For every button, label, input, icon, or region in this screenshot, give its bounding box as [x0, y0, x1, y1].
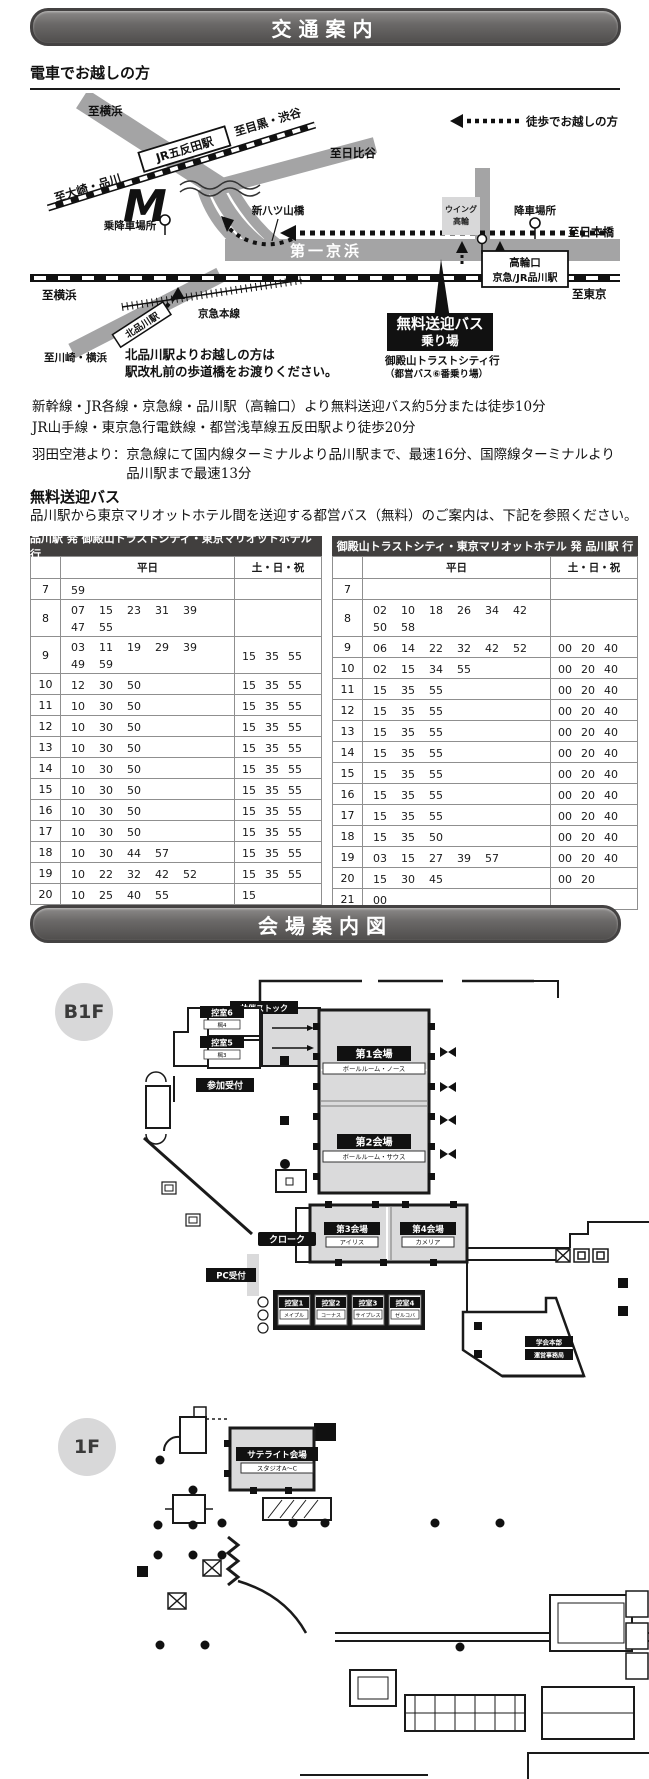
departure-minute: 30 — [99, 720, 127, 735]
departure-minute: 55 — [429, 809, 457, 824]
timetable-cell: 153555 — [363, 784, 551, 805]
departure-minute: 35 — [401, 704, 429, 719]
departure-minute: 10 — [71, 825, 99, 840]
svg-text:控室5: 控室5 — [211, 1037, 233, 1047]
departure-minute: 55 — [288, 867, 311, 882]
timetable-outbound-table: 平日土・日・祝759807152331394755903111929394959… — [30, 556, 322, 905]
b1f-halls-3-4: 第3会場 アイリス 第4会場 カメリア — [310, 1201, 467, 1266]
departure-minute: 15 — [242, 762, 265, 777]
departure-minute: 55 — [99, 620, 127, 635]
departure-minute: 15 — [242, 867, 265, 882]
timetable-row: 759 — [31, 579, 322, 600]
floor-badge-b1f: B1F — [55, 983, 113, 1041]
departure-minute: 10 — [71, 699, 99, 714]
b1f-service-room — [276, 1170, 306, 1192]
departure-minute: 55 — [429, 788, 457, 803]
departure-minute: 34 — [485, 603, 513, 618]
timetable-cell: 19 — [31, 863, 61, 884]
timetable-cell: 9 — [31, 637, 61, 674]
svg-text:京急/JR品川駅: 京急/JR品川駅 — [492, 271, 558, 284]
departure-minute: 23 — [127, 603, 155, 618]
departure-minute: 55 — [288, 762, 311, 777]
svg-text:ボールルーム・ノース: ボールルーム・ノース — [343, 1065, 405, 1073]
timetable-cell: 10254055 — [61, 884, 235, 905]
timetable-cell: 061422324252 — [363, 637, 551, 658]
departure-minute: 15 — [373, 830, 401, 845]
timetable-cell: 153555 — [235, 800, 322, 821]
departure-minute: 40 — [604, 851, 627, 866]
departure-minute: 10 — [401, 603, 429, 618]
departure-minute: 55 — [288, 741, 311, 756]
haneda-text: 京急線にて国内線ターミナルより品川駅まで、最速16分、国際線ターミナルより品川駅… — [126, 446, 617, 484]
timetable-row: 1810304457153555 — [31, 842, 322, 863]
walk-legend: 徒歩でお越しの方 — [450, 114, 618, 129]
timetable-row: 80210182634425058 — [333, 600, 638, 637]
departure-minute: 35 — [265, 678, 288, 693]
departure-minute: 15 — [373, 872, 401, 887]
timetable-cell: 153555 — [363, 721, 551, 742]
kita-note-line1: 北品川駅よりお越しの方は — [125, 347, 275, 362]
bus-timetable: 平日土・日・祝759807152331394755903111929394959… — [30, 556, 322, 905]
to-tokyo-label: 至東京 — [572, 287, 607, 301]
departure-minute: 15 — [242, 720, 265, 735]
svg-text:高輪: 高輪 — [453, 216, 470, 226]
departure-minute: 00 — [558, 809, 581, 824]
departure-minute: 55 — [429, 683, 457, 698]
b1f-waiting-room-2: 控室2 コーナス — [315, 1295, 347, 1325]
departure-minute: 20 — [581, 662, 604, 677]
departure-minute: 55 — [288, 649, 311, 664]
bus-section-heading: 無料送迎バス — [30, 486, 120, 507]
departure-minute: 15 — [373, 788, 401, 803]
departure-minute: 10 — [71, 741, 99, 756]
departure-minute: 40 — [604, 662, 627, 677]
timetable-cell: 153555 — [235, 637, 322, 674]
departure-minute: 39 — [183, 603, 211, 618]
access-map: 徒歩でお越しの方 JR五反田駅 北品川駅 高輪口 京急/JR品川駅 ウイング 高… — [30, 93, 620, 393]
timetable-cell: 12 — [31, 716, 61, 737]
heading-rule — [30, 88, 620, 90]
departure-minute: 55 — [429, 767, 457, 782]
departure-minute: 20 — [581, 830, 604, 845]
timetable-cell — [551, 600, 638, 637]
departure-minute: 15 — [242, 846, 265, 861]
svg-text:第1会場: 第1会場 — [356, 1048, 393, 1061]
timetable-cell — [235, 600, 322, 637]
svg-text:コーナス: コーナス — [321, 1313, 341, 1319]
svg-text:クローク: クローク — [269, 1235, 305, 1246]
timetable-outbound-title: 品川駅 発 御殿山トラストシティ・東京マリオットホテル 行 — [30, 536, 322, 556]
timetable-row: 16153555002040 — [333, 784, 638, 805]
timetable-row: 201025405515 — [31, 884, 322, 905]
departure-minute: 40 — [604, 704, 627, 719]
timetable-cell: 59 — [61, 579, 235, 600]
departure-minute: 03 — [71, 640, 99, 655]
departure-minute: 55 — [288, 678, 311, 693]
svg-text:楓4: 楓4 — [218, 1021, 228, 1029]
departure-minute: 40 — [604, 809, 627, 824]
departure-minute: 00 — [558, 725, 581, 740]
to-yokohama-left-label: 至横浜 — [42, 288, 77, 302]
timetable-cell: 153555 — [235, 695, 322, 716]
departure-minute: 50 — [127, 825, 155, 840]
departure-minute: 49 — [71, 657, 99, 672]
departure-minute: 00 — [558, 767, 581, 782]
bus-description: 品川駅から東京マリオットホテル間を送迎する都営バス（無料）のご案内は、下記を参照… — [30, 507, 638, 526]
section-banner-venue: 会場案内図 — [30, 905, 621, 943]
departure-minute: 00 — [558, 746, 581, 761]
timetable-cell: 153555 — [235, 863, 322, 884]
departure-minute: 20 — [581, 683, 604, 698]
b1f-ballroom: 第1会場 ボールルーム・ノース 第2会場 ボールルーム・サウス — [313, 1010, 456, 1193]
timetable-row: 10123050153555 — [31, 674, 322, 695]
departure-minute: 40 — [604, 767, 627, 782]
timetable-cell: 103050 — [61, 695, 235, 716]
svg-text:スタジオA〜C: スタジオA〜C — [257, 1464, 298, 1473]
departure-minute: 15 — [401, 851, 429, 866]
f1-satellite-hall: サテライト会場 スタジオA〜C — [224, 1423, 336, 1494]
timetable-cell: 15 — [333, 763, 363, 784]
departure-minute: 35 — [265, 867, 288, 882]
boarding-point-label: 乗降車場所 — [103, 219, 157, 232]
b1f-waiting-rooms-1-4: 控室1 メイプル 控室2 コーナス 控室3 サイプレス 控 — [273, 1290, 425, 1330]
departure-minute: 30 — [401, 872, 429, 887]
timetable-inbound-table: 平日土・日・祝780210182634425058906142232425200… — [332, 556, 638, 910]
timetable-row: 13153555002040 — [333, 721, 638, 742]
departure-minute: 42 — [513, 603, 541, 618]
timetable-cell: 8 — [333, 600, 363, 637]
departure-minute: 27 — [429, 851, 457, 866]
departure-minute: 15 — [373, 746, 401, 761]
departure-minute: 55 — [429, 746, 457, 761]
svg-text:ウイング: ウイング — [445, 204, 477, 214]
svg-text:第4会場: 第4会場 — [412, 1224, 444, 1235]
timetable-cell: 18 — [31, 842, 61, 863]
departure-minute: 50 — [373, 620, 401, 635]
timetable-row: 17103050153555 — [31, 821, 322, 842]
door-bowtie-icons — [440, 1047, 456, 1159]
departure-minute: 15 — [242, 699, 265, 714]
departure-minute: 40 — [604, 641, 627, 656]
departure-minute: 35 — [265, 804, 288, 819]
departure-minute: 42 — [155, 867, 183, 882]
departure-minute: 11 — [99, 640, 127, 655]
departure-minute: 39 — [183, 640, 211, 655]
departure-minute: 50 — [127, 783, 155, 798]
departure-minute: 15 — [373, 767, 401, 782]
departure-minute: 30 — [99, 762, 127, 777]
departure-minute: 35 — [401, 683, 429, 698]
b1f-columns — [280, 1056, 290, 1169]
timetable-row: 1002153455002040 — [333, 658, 638, 679]
train-section-heading: 電車でお越しの方 — [30, 62, 150, 83]
departure-minute: 15 — [373, 704, 401, 719]
f1-black-column — [137, 1566, 148, 1577]
departure-minute: 15 — [373, 683, 401, 698]
departure-minute: 50 — [127, 804, 155, 819]
svg-text:高輪口: 高輪口 — [509, 256, 541, 269]
departure-minute: 50 — [127, 678, 155, 693]
timetable-cell: 002040 — [551, 826, 638, 847]
timetable-cell: 0315273957 — [363, 847, 551, 868]
departure-minute: 55 — [288, 846, 311, 861]
timetable-cell: 153555 — [235, 779, 322, 800]
departure-minute: 00 — [558, 662, 581, 677]
timetable-row: 15103050153555 — [31, 779, 322, 800]
b1f-registration-label: 参加受付 — [196, 1078, 254, 1092]
timetable-cell: 153555 — [235, 674, 322, 695]
timetable-cell: 153555 — [235, 821, 322, 842]
departure-minute: 40 — [604, 683, 627, 698]
to-hibiya-label: 至日比谷 — [330, 146, 376, 160]
section-banner-transportation: 交通案内 — [30, 8, 621, 46]
b1f-waiting-room-3: 控室3 サイプレス — [352, 1295, 384, 1325]
departure-minute: 50 — [127, 741, 155, 756]
departure-minute: 59 — [99, 657, 127, 672]
b1f-waiting-room-4: 控室4 ゼルコバ — [389, 1295, 421, 1325]
timetable-cell: 7 — [31, 579, 61, 600]
timetable-header-cell: 土・日・祝 — [551, 557, 638, 579]
timetable-cell: 17 — [31, 821, 61, 842]
timetable-row: 14103050153555 — [31, 758, 322, 779]
departure-minute: 55 — [429, 725, 457, 740]
timetable-cell: 103050 — [61, 779, 235, 800]
timetable-cell: 11 — [31, 695, 61, 716]
departure-minute: 20 — [581, 788, 604, 803]
departure-minute: 42 — [485, 641, 513, 656]
departure-minute: 55 — [288, 825, 311, 840]
departure-minute: 40 — [604, 788, 627, 803]
timetable-outbound: 品川駅 発 御殿山トラストシティ・東京マリオットホテル 行 平日土・日・祝759… — [30, 536, 322, 905]
svg-text:アイリス: アイリス — [340, 1240, 364, 1247]
timetable-cell: 0020 — [551, 868, 638, 889]
departure-minute: 15 — [373, 809, 401, 824]
departure-minute: 52 — [183, 867, 211, 882]
departure-minute: 30 — [99, 699, 127, 714]
svg-text:控室3: 控室3 — [359, 1299, 378, 1308]
walk-legend-label: 徒歩でお越しの方 — [525, 115, 618, 129]
timetable-row: 190315273957002040 — [333, 847, 638, 868]
timetable-cell: 153555 — [363, 805, 551, 826]
departure-minute: 30 — [99, 804, 127, 819]
departure-minute: 18 — [429, 603, 457, 618]
svg-text:乗り場: 乗り場 — [420, 333, 459, 348]
timetable-cell: 1022324252 — [61, 863, 235, 884]
bus-destination-label: 御殿山トラストシティ行 — [384, 354, 500, 367]
departure-minute: 10 — [71, 804, 99, 819]
timetable-cell: 9 — [333, 637, 363, 658]
departure-minute: 47 — [71, 620, 99, 635]
departure-minute: 15 — [242, 741, 265, 756]
b1f-hq-room: 学会本部 運営事務局 — [474, 1322, 573, 1360]
svg-text:控室4: 控室4 — [396, 1299, 415, 1308]
timetable-cell: 11 — [333, 679, 363, 700]
alight-point-label: 降車場所 — [514, 204, 556, 217]
departure-minute: 10 — [71, 762, 99, 777]
svg-text:学会本部: 学会本部 — [536, 1337, 563, 1346]
timetable-row: 807152331394755 — [31, 600, 322, 637]
departure-minute: 30 — [99, 846, 127, 861]
departure-minute: 50 — [127, 762, 155, 777]
timetable-row: 11153555002040 — [333, 679, 638, 700]
haneda-note: 羽田空港より： 京急線にて国内線ターミナルより品川駅まで、最速16分、国際線ター… — [32, 446, 617, 484]
departure-minute: 55 — [429, 704, 457, 719]
timetable-inbound: 御殿山トラストシティ・東京マリオットホテル 発 品川駅 行 平日土・日・祝780… — [332, 536, 638, 910]
timetable-cell: 153550 — [363, 826, 551, 847]
departure-minute: 10 — [71, 888, 99, 903]
departure-minute: 15 — [99, 603, 127, 618]
departure-minute: 55 — [457, 662, 485, 677]
svg-text:PC受付: PC受付 — [216, 1271, 246, 1282]
timetable-row: 9061422324252002040 — [333, 637, 638, 658]
timetable-cell: 153555 — [235, 758, 322, 779]
departure-minute: 35 — [401, 788, 429, 803]
b1f-far-right-columns — [618, 1278, 628, 1316]
timetable-row: 191022324252153555 — [31, 863, 322, 884]
timetable-cell: 002040 — [551, 700, 638, 721]
timetable-cell: 16 — [333, 784, 363, 805]
departure-minute: 35 — [401, 746, 429, 761]
departure-minute: 15 — [373, 725, 401, 740]
departure-minute: 35 — [401, 809, 429, 824]
departure-minute: 35 — [265, 846, 288, 861]
timetable-row: 12103050153555 — [31, 716, 322, 737]
wing-takanawa: ウイング 高輪 — [442, 197, 480, 235]
departure-minute: 40 — [604, 830, 627, 845]
departure-minute: 59 — [71, 583, 99, 598]
timetable-row: 17153555002040 — [333, 805, 638, 826]
timetable-cell — [235, 579, 322, 600]
departure-minute: 30 — [99, 783, 127, 798]
f1-columns — [154, 1456, 505, 1652]
f1-floor-plan: サテライト会場 スタジオA〜C — [110, 1395, 649, 1779]
departure-minute: 15 — [242, 888, 265, 903]
departure-minute: 35 — [265, 783, 288, 798]
departure-minute: 35 — [401, 725, 429, 740]
timetable-cell: 103050 — [61, 716, 235, 737]
departure-minute: 20 — [581, 641, 604, 656]
svg-text:控室2: 控室2 — [322, 1299, 341, 1308]
svg-text:サテライト会場: サテライト会場 — [247, 1450, 307, 1461]
haneda-label: 羽田空港より： — [32, 446, 126, 484]
timetable-cell: 153555 — [363, 679, 551, 700]
departure-minute: 15 — [242, 804, 265, 819]
timetable-cell: 103050 — [61, 821, 235, 842]
departure-minute: 40 — [127, 888, 155, 903]
timetable-cell: 8 — [31, 600, 61, 637]
departure-minute: 20 — [581, 767, 604, 782]
timetable-cell: 19 — [333, 847, 363, 868]
departure-minute: 50 — [127, 720, 155, 735]
svg-text:第3会場: 第3会場 — [336, 1224, 368, 1235]
b1f-waiting-room-6: 控室6 楓4 — [200, 1006, 260, 1036]
departure-minute: 35 — [265, 741, 288, 756]
timetable-cell: 20 — [333, 868, 363, 889]
departure-minute: 35 — [401, 767, 429, 782]
b1f-corridor-boxes — [556, 1249, 608, 1262]
departure-minute: 35 — [401, 830, 429, 845]
departure-minute: 31 — [155, 603, 183, 618]
timetable-row: 12153555002040 — [333, 700, 638, 721]
departure-minute: 00 — [558, 872, 581, 887]
shinagawa-station: 高輪口 京急/JR品川駅 — [482, 251, 568, 287]
timetable-cell: 14 — [31, 758, 61, 779]
timetable-cell: 002040 — [551, 847, 638, 868]
departure-minute: 35 — [265, 699, 288, 714]
timetable-cell: 10304457 — [61, 842, 235, 863]
departure-minute: 19 — [127, 640, 155, 655]
departure-minute: 50 — [127, 699, 155, 714]
access-note-2: JR山手線・東京急行電鉄線・都営浅草線五反田駅より徒歩20分 — [32, 419, 415, 438]
departure-minute: 25 — [99, 888, 127, 903]
timetable-cell: 153555 — [235, 842, 322, 863]
timetable-row: 16103050153555 — [31, 800, 322, 821]
svg-text:第2会場: 第2会場 — [356, 1136, 393, 1149]
timetable-row: 15153555002040 — [333, 763, 638, 784]
timetable-header-row: 平日土・日・祝 — [333, 557, 638, 579]
bus-platform-label: （都営バス⑥番乗り場） — [385, 368, 488, 380]
departure-minute: 44 — [127, 846, 155, 861]
departure-minute: 10 — [71, 867, 99, 882]
timetable-cell: 15 — [31, 779, 61, 800]
svg-text:サイプレス: サイプレス — [355, 1313, 380, 1319]
floor-badge-1f: 1F — [58, 1418, 116, 1476]
svg-text:カメリア: カメリア — [416, 1240, 441, 1247]
b1f-waiting-room-5: 控室5 楓3 — [200, 1036, 260, 1068]
svg-text:ボールルーム・サウス: ボールルーム・サウス — [343, 1153, 406, 1161]
timetable-cell: 153555 — [363, 700, 551, 721]
departure-minute: 30 — [99, 825, 127, 840]
timetable-row: 11103050153555 — [31, 695, 322, 716]
departure-minute: 52 — [513, 641, 541, 656]
svg-text:運営事務局: 運営事務局 — [534, 1351, 564, 1359]
departure-minute: 10 — [71, 846, 99, 861]
departure-minute: 00 — [558, 851, 581, 866]
timetable-cell: 18 — [333, 826, 363, 847]
timetable-cell: 07152331394755 — [61, 600, 235, 637]
departure-minute: 58 — [401, 620, 429, 635]
svg-text:参加受付: 参加受付 — [207, 1080, 243, 1092]
timetable-cell: 002040 — [551, 658, 638, 679]
departure-minute: 03 — [373, 851, 401, 866]
departure-minute: 20 — [581, 851, 604, 866]
departure-minute: 07 — [71, 603, 99, 618]
departure-minute: 32 — [457, 641, 485, 656]
departure-minute: 02 — [373, 603, 401, 618]
timetable-cell: 13 — [333, 721, 363, 742]
departure-minute: 10 — [71, 783, 99, 798]
departure-minute: 15 — [401, 662, 429, 677]
banner-title: 会場案内図 — [258, 910, 393, 939]
b1f-cloak-label: クローク — [258, 1232, 316, 1246]
svg-text:控室6: 控室6 — [211, 1007, 233, 1017]
departure-minute: 20 — [581, 809, 604, 824]
timetable-cell: 03111929394959 — [61, 637, 235, 674]
banner-title: 交通案内 — [272, 13, 380, 42]
timetable-cell: 17 — [333, 805, 363, 826]
b1f-floor-plan: 共催ストック 控室6 楓4 控室5 楓3 参加受付 — [110, 968, 649, 1395]
timetable-row: 7 — [333, 579, 638, 600]
departure-minute: 55 — [288, 783, 311, 798]
timetable-cell: 12 — [333, 700, 363, 721]
timetable-cell: 002040 — [551, 679, 638, 700]
departure-minute: 30 — [99, 741, 127, 756]
timetable-cell: 16 — [31, 800, 61, 821]
timetable-cell: 10 — [333, 658, 363, 679]
departure-minute: 22 — [429, 641, 457, 656]
timetable-inbound-title: 御殿山トラストシティ・東京マリオットホテル 発 品川駅 行 — [332, 536, 638, 556]
svg-text:控室1: 控室1 — [285, 1299, 304, 1308]
